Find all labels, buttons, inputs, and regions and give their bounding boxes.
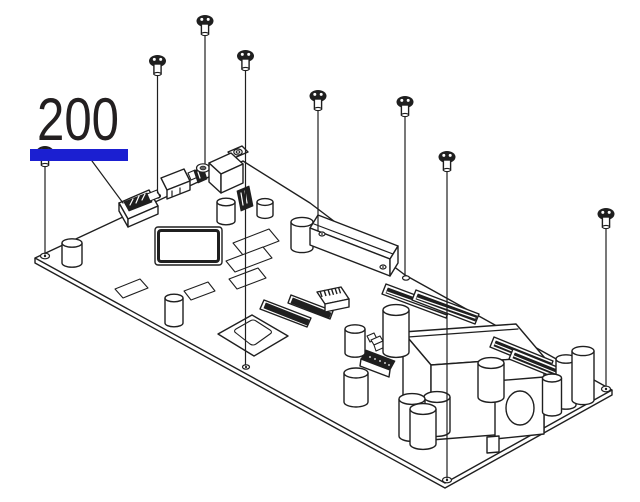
capacitor: [410, 404, 436, 450]
parts-diagram-page: 200: [0, 0, 640, 502]
capacitor: [217, 198, 235, 225]
exploded-parts-diagram: 200: [0, 0, 640, 502]
mounting-ring: [197, 164, 210, 172]
capacitor: [257, 199, 273, 219]
capacitor: [572, 346, 594, 404]
capacitor: [383, 305, 409, 358]
capacitor: [165, 294, 183, 327]
capacitor: [62, 239, 82, 267]
capacitor: [345, 325, 365, 357]
capacitor: [344, 368, 368, 407]
ic-socket: [155, 227, 222, 265]
capacitor: [543, 374, 562, 416]
capacitor: [478, 358, 504, 403]
part-number-label[interactable]: 200: [37, 86, 119, 153]
